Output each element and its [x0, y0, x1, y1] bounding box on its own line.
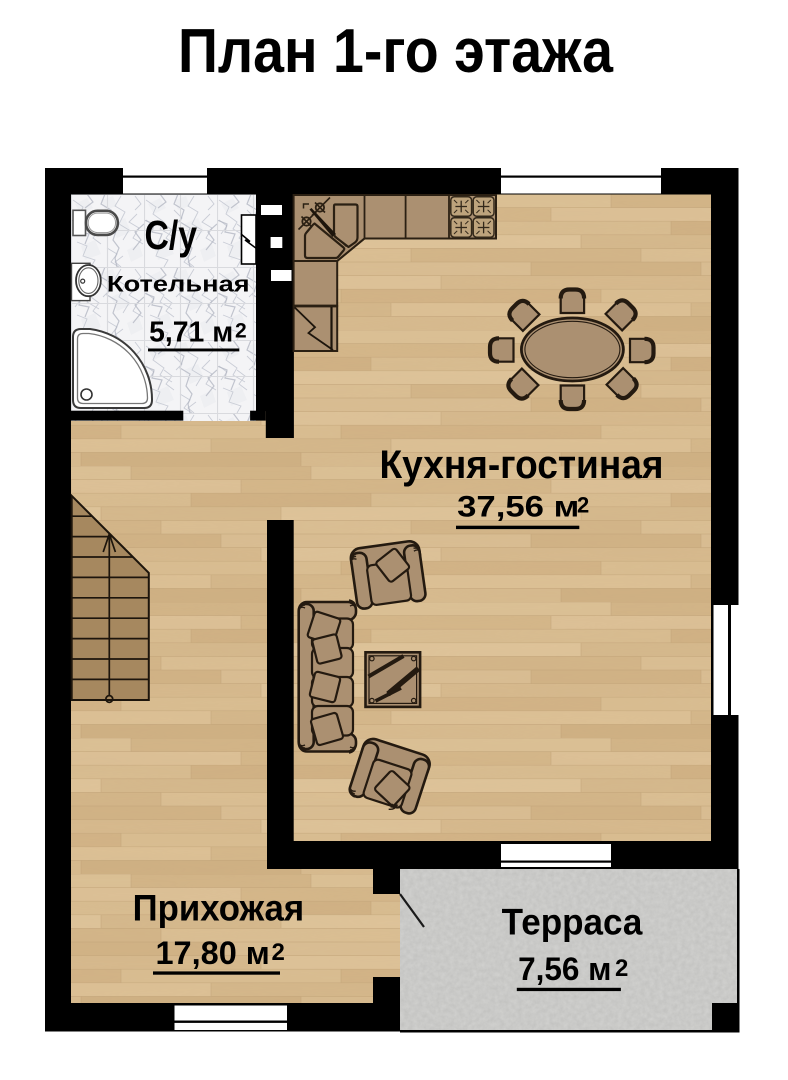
svg-text:Котельная: Котельная [107, 271, 250, 296]
svg-text:37,56 м: 37,56 м [457, 491, 579, 524]
svg-text:С/у: С/у [145, 212, 198, 258]
svg-text:2: 2 [615, 955, 628, 982]
svg-text:5,71 м: 5,71 м [149, 317, 233, 349]
svg-text:2: 2 [577, 493, 589, 518]
svg-text:2: 2 [235, 320, 247, 343]
svg-text:2: 2 [272, 939, 285, 966]
svg-text:Прихожая: Прихожая [133, 888, 305, 929]
svg-text:Кухня-гостиная: Кухня-гостиная [380, 443, 664, 487]
svg-text:7,56 м: 7,56 м [518, 951, 611, 987]
svg-text:17,80 м: 17,80 м [156, 935, 270, 971]
svg-text:Терраса: Терраса [502, 902, 643, 943]
svg-text:План 1-го этажа: План 1-го этажа [178, 17, 613, 86]
